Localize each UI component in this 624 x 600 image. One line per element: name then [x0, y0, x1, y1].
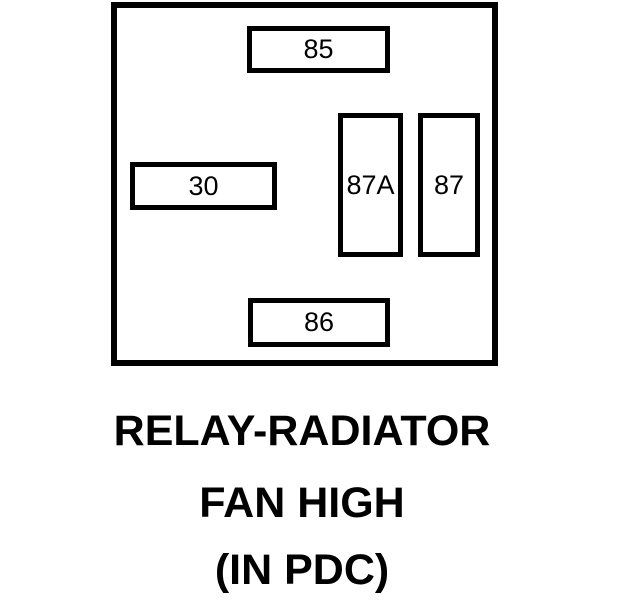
caption-line-2: FAN HIGH	[0, 482, 604, 525]
pin-box-87: 87	[418, 113, 480, 257]
pin-box-87a: 87A	[338, 113, 403, 257]
relay-diagram: 85 30 87A 87 86 RELAY-RADIATOR FAN HIGH …	[0, 0, 624, 600]
pin-box-30: 30	[130, 162, 277, 210]
caption-line-1: RELAY-RADIATOR	[0, 410, 604, 453]
pin-label-87: 87	[434, 172, 464, 199]
pin-box-85: 85	[247, 26, 390, 73]
caption-line-3: (IN PDC)	[0, 549, 604, 592]
pin-label-87a: 87A	[346, 172, 394, 199]
pin-label-30: 30	[188, 173, 218, 200]
pin-box-86: 86	[248, 298, 390, 347]
pin-label-85: 85	[303, 36, 333, 63]
pin-label-86: 86	[304, 309, 334, 336]
